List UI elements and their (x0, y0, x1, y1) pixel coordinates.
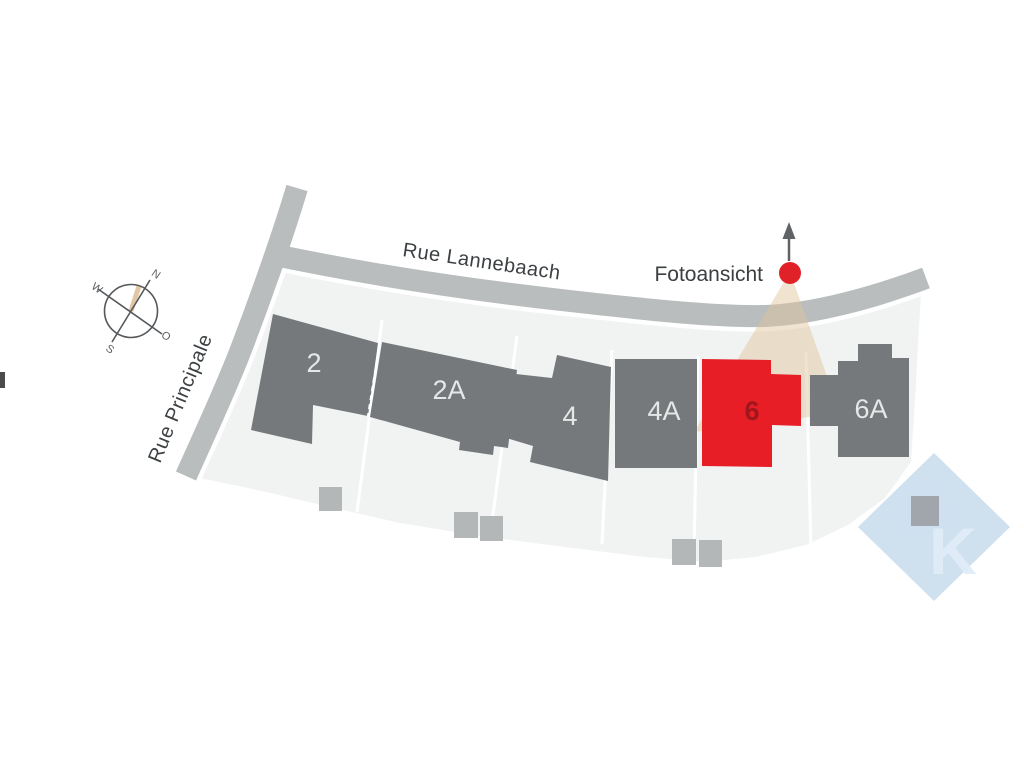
compass-south-label: S (103, 343, 116, 357)
building-label-2a: 2A (432, 375, 465, 405)
compass-east-label: O (159, 329, 173, 344)
photo-view-marker-dot (779, 262, 801, 284)
photo-view-label: Fotoansicht (654, 263, 763, 286)
photo-view-annotation: Fotoansicht (654, 222, 801, 286)
garage-block (319, 487, 342, 511)
garage-block (672, 539, 696, 565)
building-label-6a: 6A (854, 394, 887, 424)
garage-block (454, 512, 478, 538)
building-label-6: 6 (744, 396, 759, 426)
compass-north-label: N (149, 267, 162, 281)
site-plan-canvas: Rue Lannebaach Rue Principale 2 2A 4 4A … (0, 0, 1024, 768)
view-direction-arrow-head (783, 222, 796, 239)
compass-west-label: W (89, 281, 105, 297)
compass-rose: N W O S (89, 267, 173, 356)
building-label-2: 2 (306, 348, 321, 378)
edge-artifact (0, 372, 5, 388)
garage-block (480, 516, 503, 541)
building-label-4a: 4A (647, 396, 680, 426)
logo-letter-k: K (929, 514, 977, 588)
garage-block (699, 540, 722, 567)
site-plan: Rue Lannebaach Rue Principale 2 2A 4 4A … (0, 0, 1024, 768)
building-label-4: 4 (562, 401, 577, 431)
compass-line-ns (112, 280, 150, 342)
